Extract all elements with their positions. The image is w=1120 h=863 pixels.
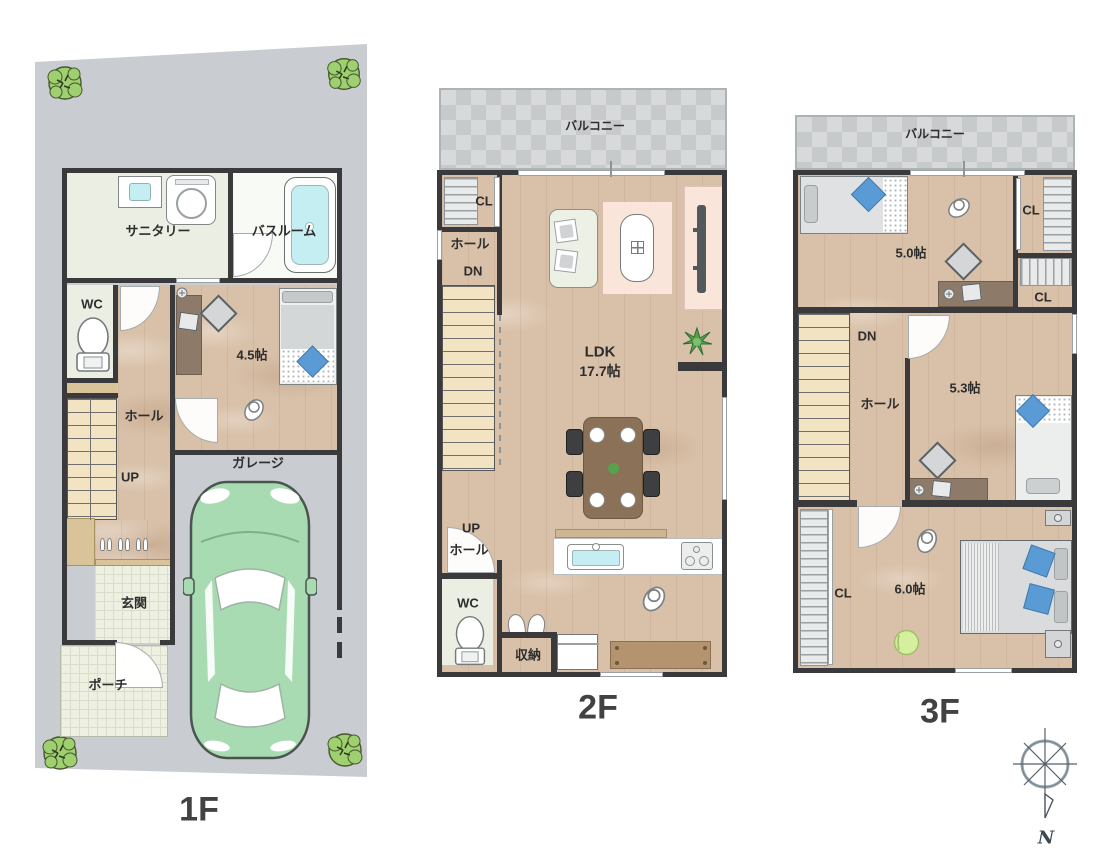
label-room-60: 6.0帖 bbox=[894, 583, 925, 596]
coffee-table bbox=[620, 214, 654, 282]
label-dn-3f: DN bbox=[858, 330, 877, 343]
bed-ruffle bbox=[963, 543, 999, 631]
label-closet-2f: CL bbox=[475, 195, 492, 208]
closet-door bbox=[828, 509, 833, 665]
window bbox=[1072, 314, 1077, 354]
slipper bbox=[136, 538, 141, 551]
outlet-dot bbox=[1054, 640, 1062, 648]
sliding-door-tick bbox=[610, 161, 612, 177]
closet-rack-2f bbox=[444, 177, 478, 225]
wall bbox=[1072, 170, 1077, 673]
label-wc-2f: WC bbox=[457, 597, 479, 610]
washbasin bbox=[118, 176, 162, 208]
burner bbox=[685, 556, 695, 566]
refrigerator bbox=[557, 634, 598, 670]
plate bbox=[589, 492, 605, 508]
label-ldk: LDK bbox=[585, 345, 616, 360]
window bbox=[722, 397, 727, 500]
cabinet-knob bbox=[615, 661, 619, 665]
table-grid-icon bbox=[631, 241, 644, 254]
car-icon bbox=[183, 478, 317, 762]
tree-icon bbox=[42, 60, 88, 106]
label-storage: 収納 bbox=[515, 649, 541, 662]
dining-chair bbox=[643, 429, 660, 455]
label-hall-3f: ホール bbox=[860, 398, 899, 411]
wall bbox=[793, 668, 1077, 673]
north-label: N bbox=[1038, 828, 1054, 849]
cabinet bbox=[610, 641, 711, 669]
washing-machine-drum bbox=[176, 188, 207, 219]
garage-gate-dash bbox=[337, 642, 342, 658]
washing-machine bbox=[166, 175, 216, 225]
tv bbox=[697, 205, 706, 293]
label-balcony-3f: バルコニー bbox=[905, 128, 965, 140]
wall bbox=[551, 638, 557, 672]
laptop-3f bbox=[931, 480, 952, 498]
toilet-icon bbox=[451, 614, 489, 668]
person-marker bbox=[946, 194, 972, 222]
label-room-50: 5.0帖 bbox=[895, 247, 926, 260]
label-room-45: 4.5帖 bbox=[236, 349, 267, 362]
wall bbox=[160, 640, 175, 645]
bed-pillow bbox=[1054, 591, 1068, 623]
wall-stub bbox=[678, 362, 727, 371]
plate bbox=[589, 427, 605, 443]
bed-headboard bbox=[282, 291, 333, 303]
bed-50 bbox=[800, 176, 908, 234]
laptop-1f bbox=[178, 312, 199, 331]
label-up-1f: UP bbox=[121, 471, 139, 484]
toilet-icon bbox=[72, 315, 114, 375]
ball-icon bbox=[893, 629, 920, 656]
window bbox=[437, 230, 442, 260]
sofa bbox=[549, 209, 598, 288]
slipper bbox=[107, 538, 112, 551]
bed-pillow bbox=[804, 185, 818, 223]
kitchen-sink bbox=[567, 544, 624, 570]
floor-plan-canvas: サニタリー バスルーム WC ホール UP 4.5帖 ガレージ 玄関 ポーチ 1… bbox=[0, 0, 1120, 863]
bed-pillow bbox=[1054, 548, 1068, 580]
wall bbox=[62, 393, 118, 398]
outlet-icon bbox=[176, 287, 188, 299]
table-plant bbox=[608, 463, 619, 474]
label-closet-3f-b: CL bbox=[1034, 291, 1051, 304]
window bbox=[600, 672, 663, 677]
label-sanitary: サニタリー bbox=[125, 225, 190, 238]
cabinet-knob bbox=[703, 646, 707, 650]
slipper bbox=[143, 538, 148, 551]
stair-open-dash bbox=[499, 315, 501, 470]
stairs-1f-divider bbox=[90, 398, 91, 520]
floor-label-1f: 1F bbox=[179, 791, 219, 830]
wall bbox=[62, 168, 342, 173]
wall bbox=[500, 632, 557, 638]
desk-1f bbox=[176, 295, 202, 375]
wall bbox=[793, 307, 1077, 313]
tree-icon bbox=[322, 727, 368, 773]
tv-stand bbox=[693, 266, 697, 270]
sofa-cushion-pad bbox=[559, 254, 573, 268]
plate bbox=[620, 427, 636, 443]
wall bbox=[113, 285, 118, 383]
label-hall-1f: ホール bbox=[124, 410, 163, 423]
cabinet-knob bbox=[615, 646, 619, 650]
dining-table bbox=[583, 417, 643, 519]
closet-door bbox=[1016, 178, 1021, 250]
stairs-3f bbox=[798, 313, 850, 503]
window bbox=[955, 668, 1012, 673]
floor-label-2f: 2F bbox=[578, 689, 618, 728]
burner bbox=[693, 546, 700, 553]
side-table bbox=[1045, 630, 1071, 658]
plant-icon bbox=[681, 324, 713, 358]
wall bbox=[62, 168, 67, 645]
floor-label-3f: 3F bbox=[920, 693, 960, 732]
stove bbox=[681, 542, 713, 570]
sofa-cushion-pad bbox=[559, 224, 574, 239]
refrigerator-handle bbox=[558, 643, 599, 645]
label-porch: ポーチ bbox=[88, 679, 127, 692]
tree-icon bbox=[322, 52, 366, 96]
bed-pillow bbox=[1026, 478, 1060, 494]
label-ldk-size: 17.7帖 bbox=[579, 364, 620, 378]
wall bbox=[902, 500, 1077, 507]
entrance-step bbox=[95, 559, 173, 566]
closet-door bbox=[494, 177, 500, 227]
outlet-icon bbox=[913, 484, 925, 496]
wall bbox=[337, 168, 342, 455]
plate bbox=[620, 492, 636, 508]
stairs-1f bbox=[67, 398, 117, 520]
label-hall-upper-2f: ホール bbox=[450, 238, 489, 251]
garage-wall bbox=[337, 455, 342, 610]
bed-sheet-dots bbox=[883, 178, 907, 232]
wall bbox=[170, 285, 175, 455]
wall bbox=[1018, 253, 1072, 258]
washing-machine-panel bbox=[175, 179, 209, 185]
label-bathroom: バスルーム bbox=[252, 225, 317, 238]
stairs-2f bbox=[442, 285, 495, 471]
wall bbox=[497, 560, 502, 672]
label-balcony-2f: バルコニー bbox=[565, 120, 625, 132]
wall bbox=[437, 672, 727, 677]
dining-chair bbox=[566, 429, 583, 455]
sink-basin bbox=[572, 550, 620, 566]
wall bbox=[170, 455, 175, 645]
closet-rack-3f-a bbox=[1043, 177, 1072, 251]
wall bbox=[442, 573, 500, 579]
bed-blanket bbox=[281, 305, 334, 349]
dining-chair bbox=[566, 471, 583, 497]
wall bbox=[442, 227, 497, 232]
wall bbox=[793, 170, 798, 673]
person-marker bbox=[914, 526, 940, 556]
tv-stand bbox=[693, 228, 697, 232]
closet-rack-3f-b bbox=[1020, 258, 1072, 286]
dining-chair bbox=[643, 471, 660, 497]
balcony-sliding-door bbox=[910, 170, 1025, 176]
burner bbox=[699, 556, 709, 566]
balcony-3f bbox=[795, 115, 1075, 170]
closet-rack-3f-c bbox=[800, 509, 828, 666]
wall bbox=[793, 500, 857, 507]
outlet-dot bbox=[1054, 514, 1062, 522]
outlet-icon bbox=[943, 288, 955, 300]
person-marker bbox=[640, 583, 668, 615]
wall bbox=[62, 378, 118, 383]
label-closet-3f-a: CL bbox=[1022, 204, 1039, 217]
sliding-door-tick bbox=[963, 161, 965, 177]
balcony-sliding-door bbox=[518, 170, 665, 176]
garage-gate-dash bbox=[337, 617, 342, 633]
label-closet-3f-c: CL bbox=[834, 587, 851, 600]
person-marker bbox=[242, 396, 266, 424]
label-wc-1f: WC bbox=[81, 298, 103, 311]
washbasin-bowl bbox=[129, 183, 151, 201]
wall bbox=[170, 450, 342, 455]
label-hall-lower-2f: ホール bbox=[449, 544, 488, 557]
label-up-2f: UP bbox=[462, 522, 480, 535]
wc-shelf bbox=[67, 383, 117, 393]
sliding-door bbox=[176, 278, 220, 283]
label-dn-2f: DN bbox=[464, 265, 483, 278]
wall bbox=[62, 640, 117, 645]
label-entrance: 玄関 bbox=[121, 597, 147, 610]
kitchen-counter-top bbox=[555, 529, 667, 538]
sofa-cushion bbox=[554, 219, 579, 244]
compass-icon bbox=[1003, 722, 1088, 822]
label-room-53: 5.3帖 bbox=[949, 382, 980, 395]
sink-tap bbox=[592, 543, 600, 551]
wall bbox=[905, 358, 910, 505]
slipper bbox=[100, 538, 105, 551]
slipper bbox=[118, 538, 123, 551]
slipper bbox=[125, 538, 130, 551]
sofa-cushion bbox=[554, 249, 579, 274]
laptop-3f bbox=[961, 283, 982, 302]
side-table bbox=[1045, 510, 1071, 526]
label-garage: ガレージ bbox=[232, 457, 284, 470]
cabinet-knob bbox=[703, 661, 707, 665]
